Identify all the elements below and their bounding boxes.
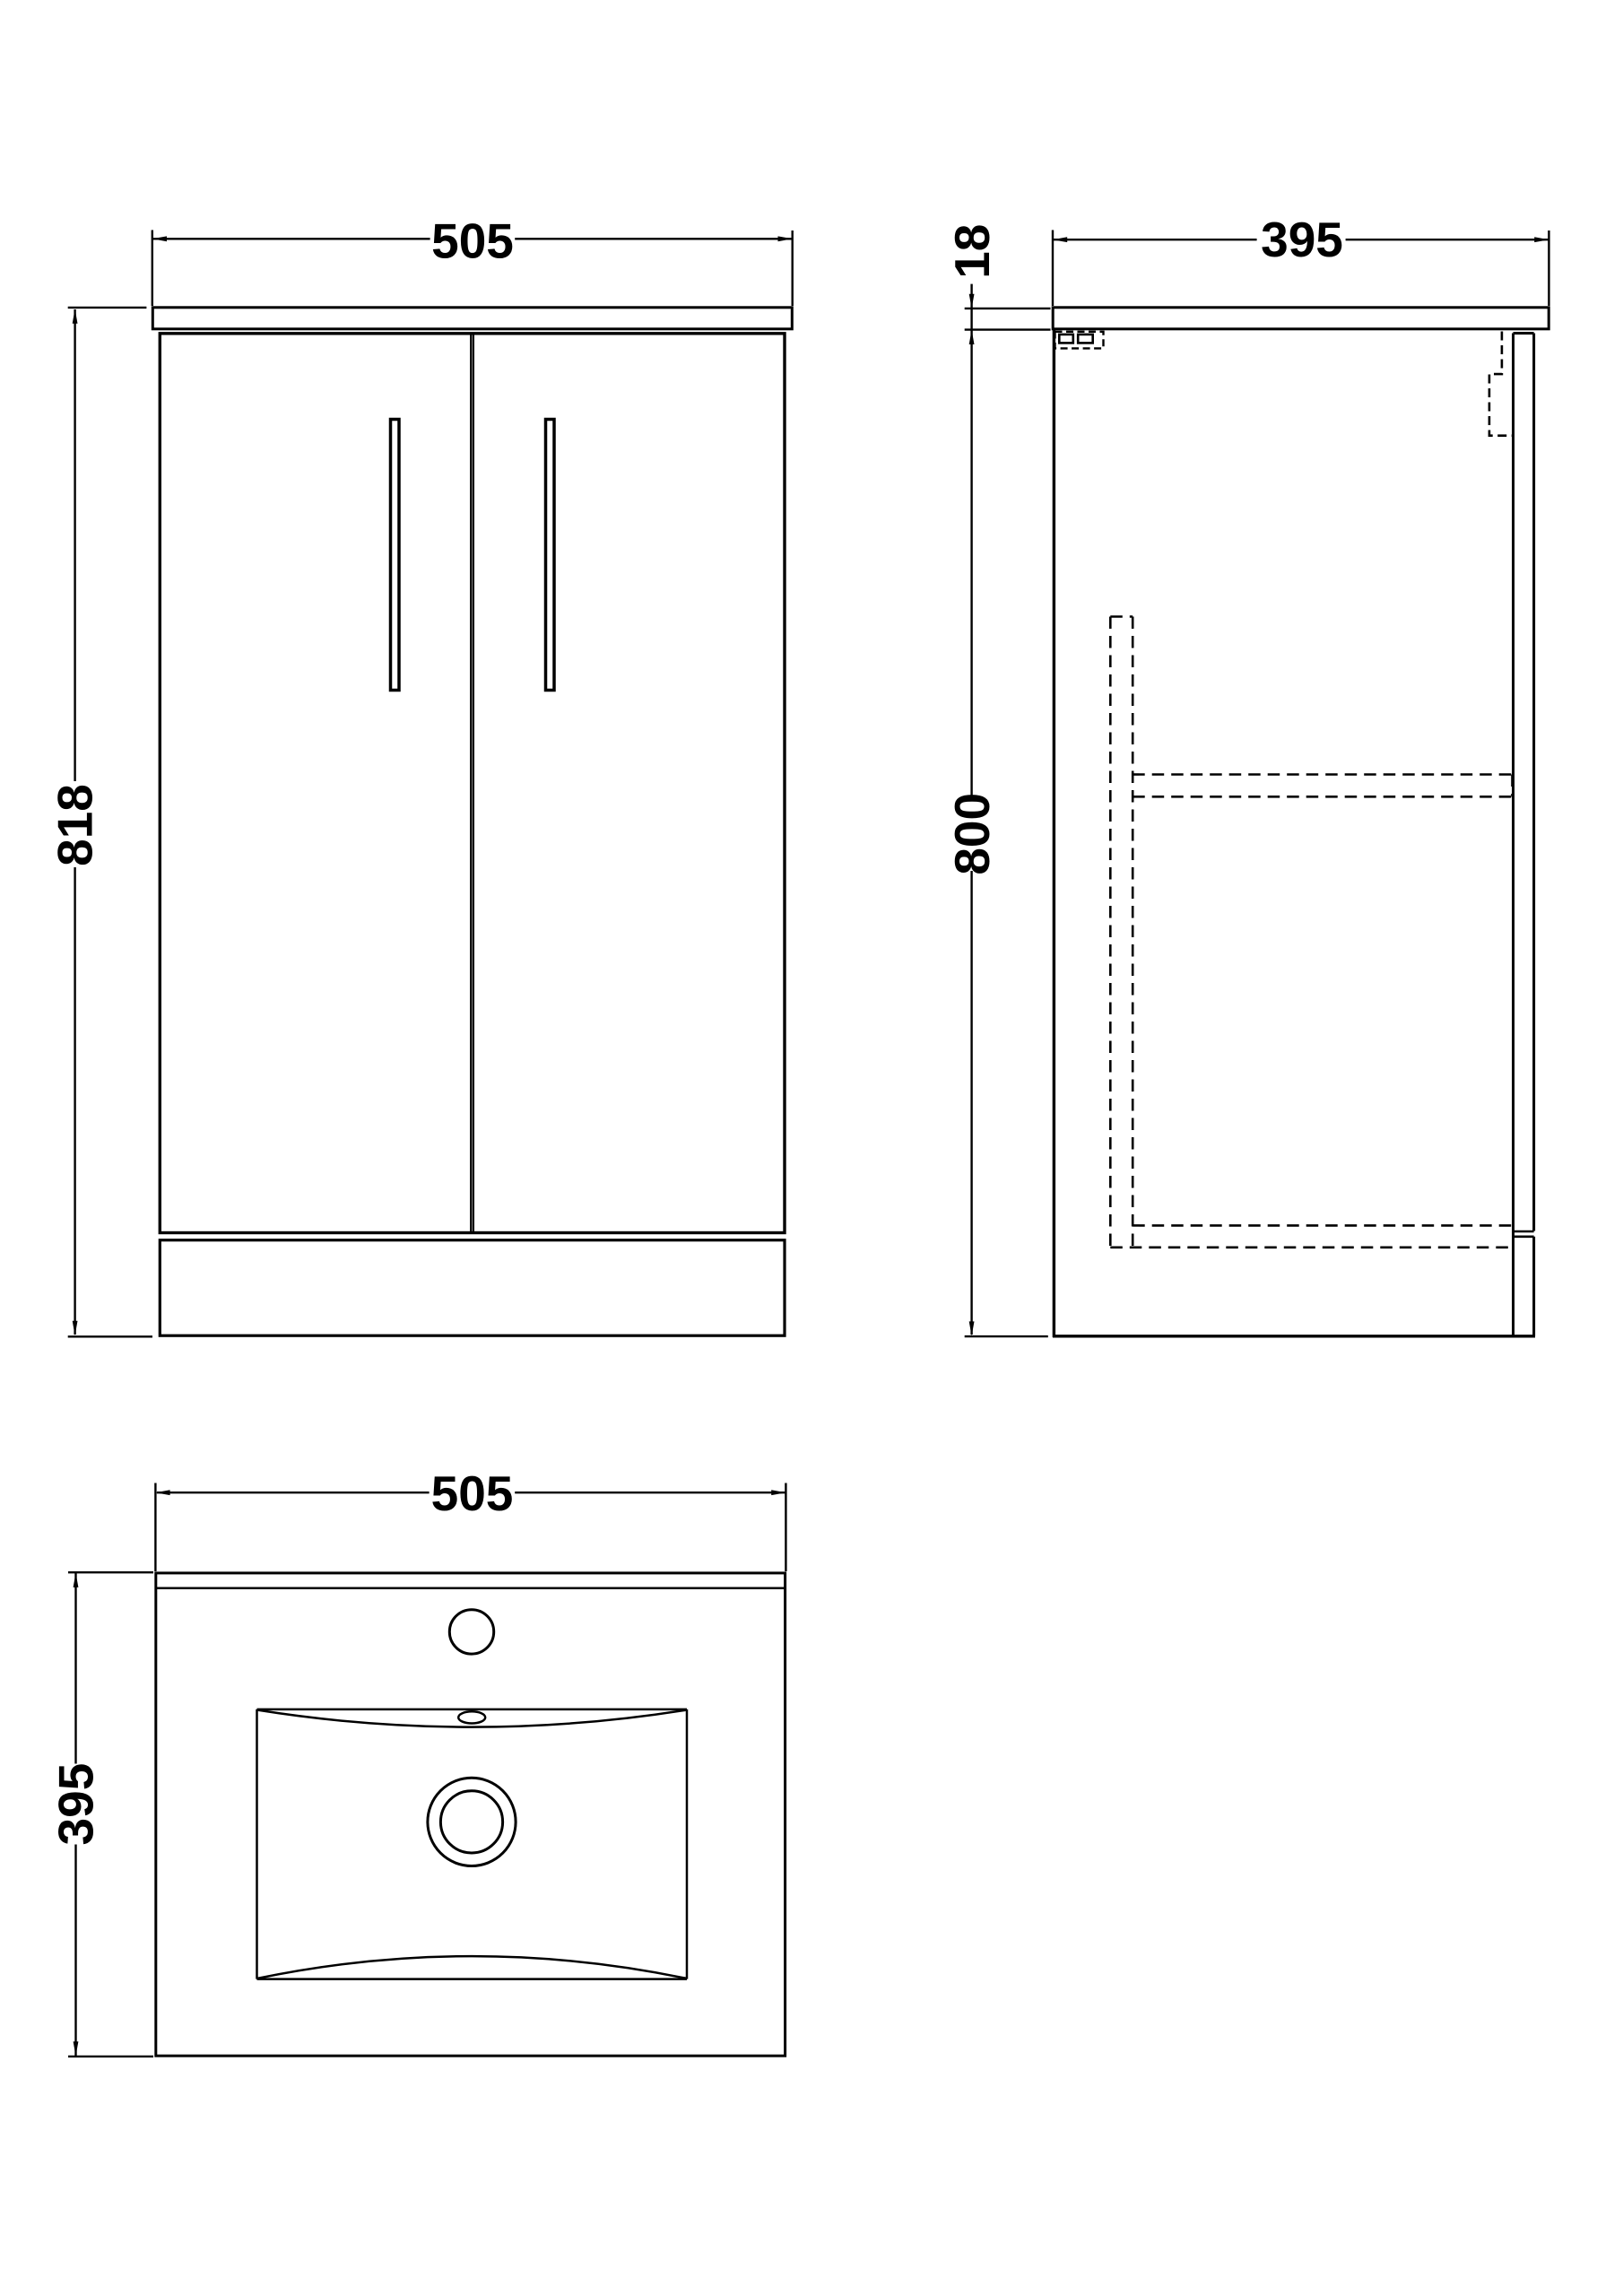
svg-text:395: 395 bbox=[48, 1763, 104, 1846]
svg-text:818: 818 bbox=[48, 784, 103, 866]
svg-text:800: 800 bbox=[944, 793, 1000, 875]
svg-text:18: 18 bbox=[944, 224, 1000, 279]
svg-text:505: 505 bbox=[431, 213, 514, 268]
svg-text:505: 505 bbox=[431, 1465, 514, 1521]
svg-text:395: 395 bbox=[1261, 212, 1343, 267]
